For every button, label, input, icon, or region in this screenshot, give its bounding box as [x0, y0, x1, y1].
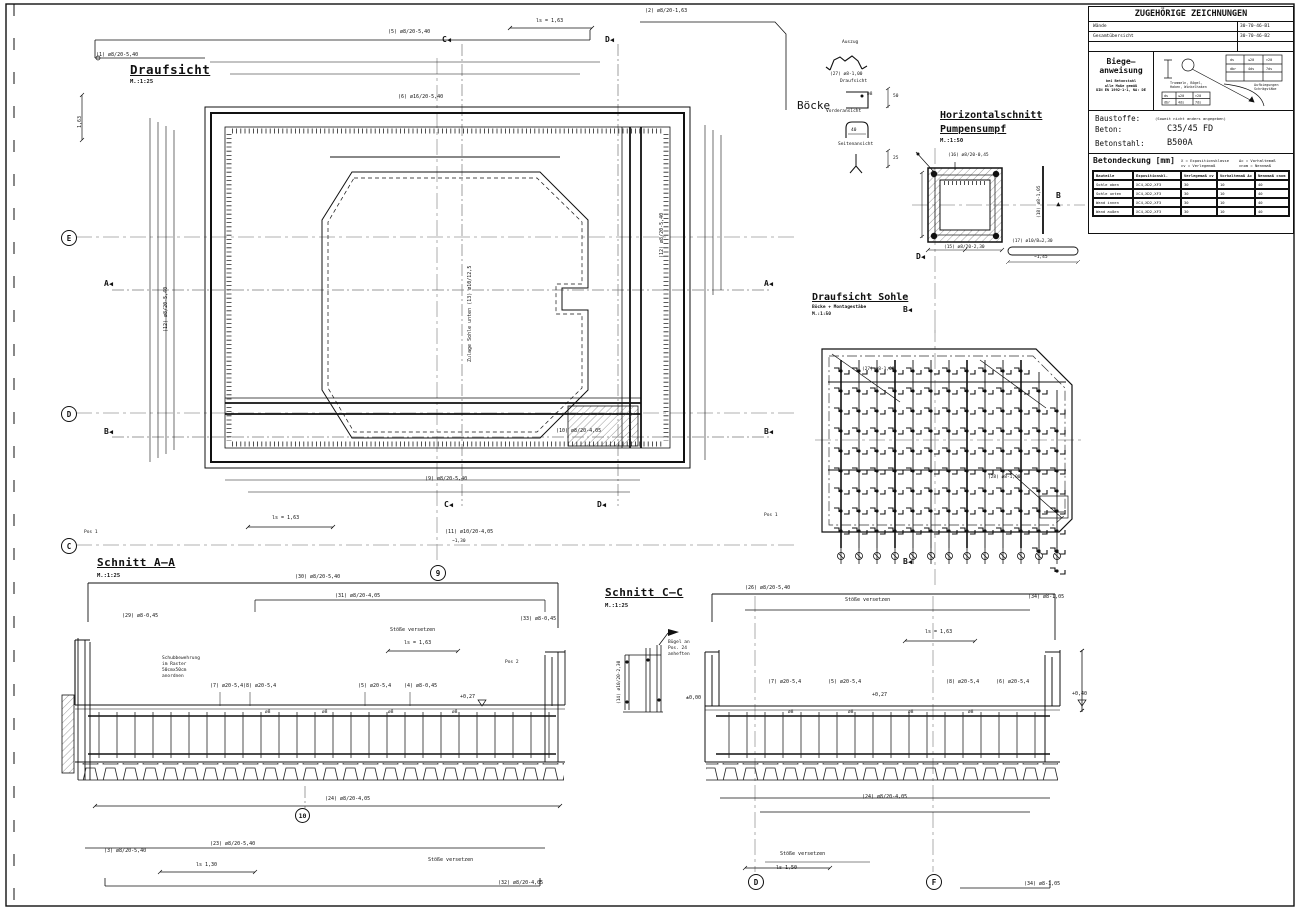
pumpensumpf-title-1: Horizontalschnitt — [940, 110, 1042, 121]
biegeanweisung-title-1: Biege— — [1089, 57, 1153, 66]
bend-table-cell: 7ds — [1266, 67, 1272, 71]
diameter-label: ø8 — [968, 711, 973, 716]
schnitt-aa-linework — [62, 583, 565, 886]
related-drawing-label: Wände — [1089, 22, 1237, 31]
bend-table-cell: ds — [1164, 94, 1168, 98]
empty-cell — [1089, 42, 1237, 51]
col-header: Verlegemaß cv — [1181, 171, 1217, 180]
dim-label: 50 — [893, 95, 898, 100]
dim-label: ~1,30 — [452, 540, 466, 545]
cell: 40 — [1255, 198, 1289, 207]
cell: 10 — [1217, 198, 1255, 207]
cell: 30 — [1181, 180, 1217, 189]
bar-callout: (30) ø8/20-5,40 — [295, 575, 340, 581]
bar-callout: (32) ø8/20-4,05 — [498, 881, 543, 887]
diameter-label: ø8 — [265, 711, 270, 716]
section-marker-b-sohle-bottom: B◀ — [903, 558, 912, 566]
bend-diagram: ds ≤20 >20 dbr 4ds 7ds ds ≤20 >20 dbr 4d… — [1154, 52, 1292, 109]
bar-callout: (34) ø8-1,05 — [1024, 882, 1060, 888]
bar-callout: (9) ø8/20-5,40 — [425, 477, 467, 483]
section-triangle-icon: ◀ — [908, 558, 912, 566]
related-drawing-label: Gesamtübersicht — [1089, 32, 1237, 41]
pos-label: Pos 1 — [764, 514, 778, 519]
cell: Sohle unten — [1093, 189, 1133, 198]
pumpensumpf-linework — [916, 152, 1080, 264]
bar-callout: (24) ø8/20-4,05 — [325, 797, 370, 803]
cell: 30 — [1181, 189, 1217, 198]
dim-label: ls = 1,63 — [925, 630, 952, 636]
cell: 10 — [1217, 207, 1255, 216]
empty-cell — [1237, 42, 1293, 51]
pumpensumpf-scale: M.:1:50 — [940, 138, 963, 144]
grid-bubble-d: D — [61, 406, 77, 422]
section-marker-b-right: B◀ — [764, 428, 773, 436]
section-triangle-icon: ◀ — [447, 36, 451, 44]
dim-label: ls = 1,63 — [536, 19, 563, 25]
section-marker-a-right: A◀ — [764, 280, 773, 288]
bar-callout: (24) ø8/20-4,05 — [862, 795, 907, 801]
beton-label: Beton: — [1095, 125, 1122, 134]
related-drawing-row: Wände 30-70-46-B1 — [1089, 22, 1293, 32]
section-marker-b-left: B◀ — [104, 428, 113, 436]
plan-scale: M.:1:25 — [130, 79, 153, 85]
section-triangle-up-icon: ▲ — [1056, 200, 1060, 208]
section-letter: B — [1056, 191, 1061, 200]
betondeckung-title: Betondeckung [mm] — [1093, 156, 1175, 165]
biegeanweisung-title-2: anweisung — [1089, 66, 1153, 75]
schub-note-4: anordnen — [162, 675, 184, 680]
baustoffe-note: (Soweit nicht anders angegeben) — [1155, 116, 1226, 121]
section-marker-b-pump: B▲ — [1056, 192, 1061, 208]
boecke-draufsicht-label: Draufsicht — [840, 80, 867, 85]
boecke-auszug-label: Auszug — [842, 41, 858, 46]
section-marker-d-bottom: D◀ — [597, 501, 606, 509]
bar-callout: (28) ø8-1,00 — [988, 476, 1021, 481]
betonstahl-label: Betonstahl: — [1095, 139, 1145, 148]
bar-callout: (12) ø8/20-5,40 — [164, 287, 170, 332]
cell: 10 — [1217, 180, 1255, 189]
section-triangle-icon: ◀ — [602, 501, 606, 509]
bar-callout: (7) ø20-5,4 — [768, 680, 801, 686]
section-marker-d-pump: D◀ — [916, 253, 925, 261]
grid-bubble-e: E — [61, 230, 77, 246]
pos-label: Pos 1 — [84, 531, 98, 536]
buegel-note-3: anheften — [668, 653, 690, 658]
related-drawing-row-empty — [1089, 42, 1293, 52]
bar-callout: (6) ø16/20-5,40 — [398, 95, 443, 101]
col-header: Vorhaltemaß Δc — [1217, 171, 1255, 180]
section-marker-c-top: C◀ — [442, 36, 451, 44]
section-triangle-icon: ◀ — [610, 36, 614, 44]
pos-label: Pos 2 — [505, 661, 519, 666]
bar-callout: (5) ø20-5,4 — [358, 684, 391, 690]
bar-callout: (1) ø8/20-5,40 — [96, 53, 138, 59]
bend-table-cell: dbr — [1230, 67, 1236, 71]
biegeanweisung-diagram: ds ≤20 >20 dbr 4ds 7ds ds ≤20 >20 dbr 4d… — [1153, 52, 1293, 110]
bar-callout: (29) ø8-0,45 — [122, 614, 158, 620]
grid-bubble-f: F — [926, 874, 942, 890]
section-marker-d-top: D◀ — [605, 36, 614, 44]
cell: XC4,XD2,XF3 — [1133, 180, 1181, 189]
betondeckung-row: Wand außen XC4,XD2,XF3 30 10 40 — [1093, 207, 1289, 216]
title-block-header: ZUGEHÖRIGE ZEICHNUNGEN — [1089, 7, 1293, 22]
boecke-vorderansicht-label: Vorderansicht — [826, 110, 861, 115]
bar-callout: (5) ø8/20-5,40 — [388, 30, 430, 36]
section-triangle-icon: ◀ — [769, 428, 773, 436]
cell: 30 — [1181, 207, 1217, 216]
cell: Sohle oben — [1093, 180, 1133, 189]
dim-label: ~1,45 — [1034, 256, 1048, 261]
bar-callout: (2) ø8/20-1,63 — [645, 9, 687, 15]
section-marker-a-left: A◀ — [104, 280, 113, 288]
bar-callout: (33) ø8-0,45 — [520, 617, 556, 623]
stoesse-note: Stöße versetzen — [780, 852, 825, 858]
diameter-label: ø8 — [388, 711, 393, 716]
related-drawing-row: Gesamtübersicht 30-70-46-B2 — [1089, 32, 1293, 42]
bend-table-cell: dbr — [1164, 101, 1170, 105]
bar-callout: (26) ø8/20-5,40 — [745, 586, 790, 592]
diameter-label: ø8 — [452, 711, 457, 716]
betondeckung-row: Sohle unten XC4,XD2,XF3 30 10 40 — [1093, 189, 1289, 198]
baustoffe-label: Baustoffe: — [1095, 114, 1140, 123]
stoesse-note: Stöße versetzen — [845, 598, 890, 604]
diameter-label: ø8 — [908, 711, 913, 716]
bend-diagram-label: Haken, Winkelhaken — [1170, 85, 1207, 89]
grid-bubble-c: C — [61, 538, 77, 554]
related-drawing-number: 30-70-46-B2 — [1237, 32, 1293, 41]
cell: XC4,XD2,XF3 — [1133, 189, 1181, 198]
section-triangle-icon: ◀ — [109, 280, 113, 288]
bar-callout: (31) ø8/20-4,05 — [335, 594, 380, 600]
section-triangle-icon: ◀ — [921, 253, 925, 261]
sohle-scale: M.:1:50 — [812, 313, 831, 318]
bar-callout: (16) ø8/20-0,45 — [948, 154, 989, 159]
dim-label: 40 — [851, 129, 856, 134]
betondeckung-table: Bauteile Expositionskl. Verlegemaß cv Vo… — [1092, 170, 1290, 217]
bar-callout: (8) ø20-5,4 — [946, 680, 979, 686]
sohle-title: Draufsicht Sohle — [812, 292, 908, 303]
dim-label: ls 1,30 — [196, 863, 217, 869]
bend-table-cell: ≤20 — [1178, 94, 1184, 98]
level-label: +0,27 — [460, 695, 475, 701]
pos-bubble-10: 10 — [295, 808, 310, 823]
related-drawing-number: 30-70-46-B1 — [1237, 22, 1293, 31]
bend-diagram-label: Schrägstäbe — [1254, 87, 1276, 91]
bar-callout: (11) ø10/20-4,05 — [445, 530, 493, 536]
diameter-label: ø8 — [867, 93, 872, 98]
betonstahl-value: B500A — [1167, 138, 1193, 148]
bar-callout: (8) ø20-5,4 — [243, 684, 276, 690]
schnitt-aa-title: Schnitt A—A — [97, 557, 175, 569]
bar-callout: (6) ø20-5,4 — [996, 680, 1029, 686]
level-label: +0,27 — [872, 693, 887, 699]
dim-label: 1,63 — [78, 116, 84, 128]
stoesse-note: Stöße versetzen — [428, 858, 473, 864]
bend-table-cell: ≤20 — [1248, 58, 1254, 62]
schnitt-cc-title: Schnitt C—C — [605, 587, 683, 599]
section-marker-c-bottom: C◀ — [444, 501, 453, 509]
betondeckung-row: Sohle oben XC4,XD2,XF3 30 10 40 — [1093, 180, 1289, 189]
pumpensumpf-title-2: Pumpensumpf — [940, 124, 1006, 135]
schnitt-cc-linework — [623, 594, 1086, 888]
schnitt-aa-scale: M.:1:25 — [97, 573, 120, 579]
bar-callout: (34) ø8-1,05 — [1028, 595, 1064, 601]
bar-callout: (23) ø8/20-5,40 — [210, 842, 255, 848]
cell: XC4,XD2,XF3 — [1133, 198, 1181, 207]
section-triangle-icon: ◀ — [449, 501, 453, 509]
bend-table-cell: 7ds — [1195, 101, 1201, 105]
bend-table-cell: ds — [1230, 58, 1234, 62]
dim-label: ls = 1,63 — [404, 641, 431, 647]
bend-table-cell: 4ds — [1248, 67, 1254, 71]
cell: XC4,XD2,XF3 — [1133, 207, 1181, 216]
bar-callout: (18) ø8-1,05 — [1038, 185, 1043, 218]
cell: 40 — [1255, 189, 1289, 198]
grid-bubble-d2: D — [748, 874, 764, 890]
col-header: Expositionskl. — [1133, 171, 1181, 180]
sohle-linework — [822, 349, 1072, 574]
bar-callout: (27) ø8-1,00 — [830, 73, 863, 78]
cell: 40 — [1255, 207, 1289, 216]
zulage-note: Zulage Sohle unten (13) ø10/12,5 — [468, 266, 474, 362]
diameter-label: ø8 — [788, 711, 793, 716]
schnitt-cc-scale: M.:1:25 — [605, 603, 628, 609]
section-triangle-icon: ◀ — [908, 306, 912, 314]
bar-callout: (3) ø8/20-5,40 — [104, 849, 146, 855]
dim-label: ls = 1,63 — [272, 516, 299, 522]
bend-table-cell: >20 — [1195, 94, 1201, 98]
diameter-label: ø8 — [848, 711, 853, 716]
bar-callout: (12) ø8/20-5,40 — [660, 213, 666, 258]
grid-bubble-9: 9 — [430, 565, 446, 581]
bar-callout: (7) ø20-5,4 — [210, 684, 243, 690]
cell: 40 — [1255, 180, 1289, 189]
beton-value: C35/45 FD — [1167, 124, 1213, 134]
dim-label: 25 — [893, 157, 898, 162]
betondeckung-header-row: Bauteile Expositionskl. Verlegemaß cv Vo… — [1093, 171, 1289, 180]
drawing-sheet: Draufsicht M.:1:25 Böcke Horizontalschni… — [0, 0, 1300, 910]
bar-callout: (10) ø8/20-4,05 — [556, 429, 601, 435]
bar-callout: (4) ø8-0,45 — [404, 684, 437, 690]
bend-table-cell: >20 — [1266, 58, 1272, 62]
stoesse-note: Stöße versetzen — [390, 628, 435, 634]
bar-callout: (15) ø8/20-2,30 — [944, 246, 985, 251]
section-marker-b-sohle-top: B◀ — [903, 306, 912, 314]
bar-callout: (5) ø20-5,4 — [828, 680, 861, 686]
plan-title: Draufsicht — [130, 63, 210, 77]
dim-label: ls 1,50 — [776, 866, 797, 872]
boecke-seitenansicht-label: Seitenansicht — [838, 143, 873, 148]
biegeanweisung-note-3: DIN EN 1992-1-1, NA: DE — [1089, 88, 1153, 92]
biegeanweisung-section: Biege— anweisung bei Betonstahl alle Maß… — [1089, 52, 1293, 111]
cell: 30 — [1181, 198, 1217, 207]
cell: 10 — [1217, 189, 1255, 198]
bar-callout: (14) ø10/20-2,30 — [618, 661, 623, 704]
col-header: Nennmaß cnom — [1255, 171, 1289, 180]
biegeanweisung-text: Biege— anweisung bei Betonstahl alle Maß… — [1089, 52, 1153, 110]
bar-callout: (17) ø10/B=2,30 — [1012, 240, 1053, 245]
bar-callout: (27) ø8-1,00 — [862, 368, 895, 373]
sohle-subtitle: Böcke + Montagestäbe — [812, 306, 866, 311]
level-label: +0,40 — [1072, 692, 1087, 698]
betondeckung-row: Wand innen XC4,XD2,XF3 30 10 40 — [1093, 198, 1289, 207]
section-triangle-icon: ◀ — [769, 280, 773, 288]
section-triangle-icon: ◀ — [109, 428, 113, 436]
col-header: Bauteile — [1093, 171, 1133, 180]
cell: Wand außen — [1093, 207, 1133, 216]
level-label: ±0,00 — [686, 696, 701, 702]
diameter-label: ø8 — [322, 711, 327, 716]
betondeckung-legend-2: cv = Verlegemaß — [1181, 163, 1215, 168]
betondeckung-legend-4: cnom = Nennmaß — [1239, 163, 1271, 168]
cell: Wand innen — [1093, 198, 1133, 207]
baustoffe-section: Baustoffe: (Soweit nicht anders angegebe… — [1089, 111, 1293, 154]
bend-table-cell: 4ds — [1178, 101, 1184, 105]
title-block: ZUGEHÖRIGE ZEICHNUNGEN Wände 30-70-46-B1… — [1088, 6, 1294, 234]
